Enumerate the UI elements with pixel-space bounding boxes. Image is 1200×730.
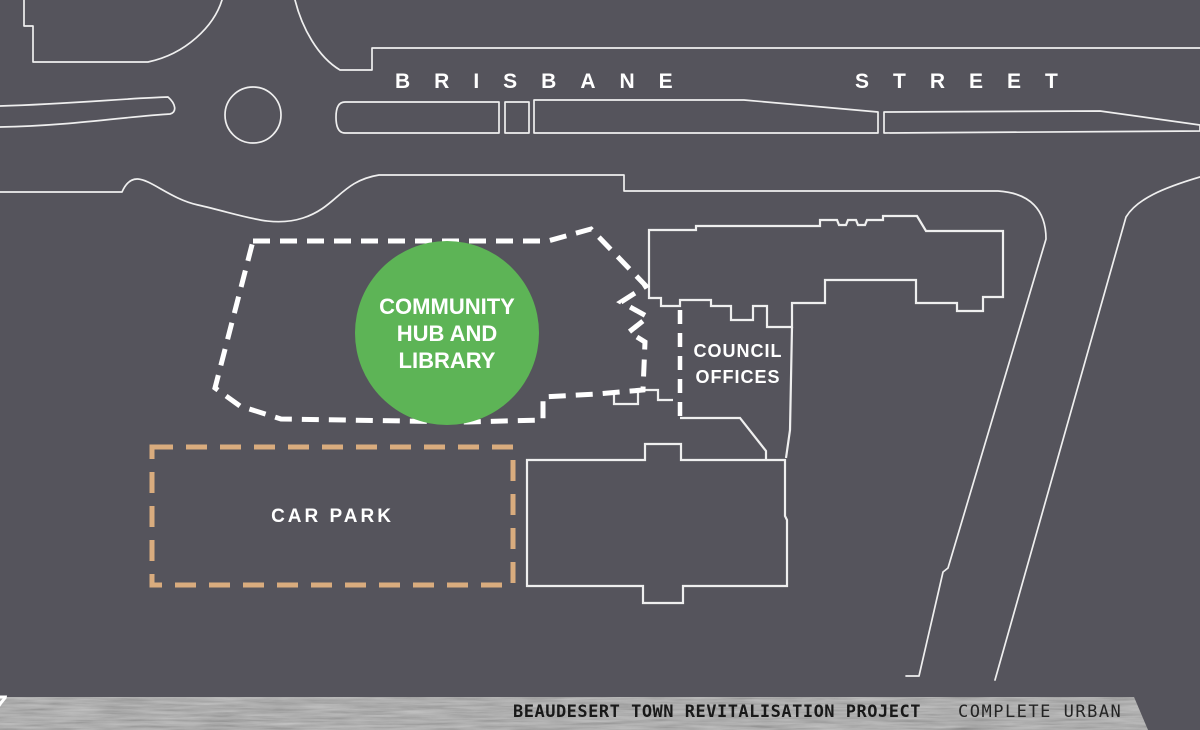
- hub-label-line2: HUB AND: [347, 320, 547, 347]
- street-label-brisbane: BRISBANE: [395, 70, 697, 94]
- council-room-bottom-outline: [680, 418, 766, 460]
- brisbane-median-3: [534, 100, 878, 133]
- footer-title-bar: BEAUDESERT TOWN REVITALISATION PROJECT C…: [0, 697, 1160, 730]
- road-top-left-corner: [24, 0, 222, 62]
- council-upper-block-outline: [649, 216, 1003, 327]
- council-offices-label: COUNCIL OFFICES: [678, 338, 798, 390]
- project-title: BEAUDESERT TOWN REVITALISATION PROJECT: [513, 702, 921, 722]
- carpark-label: CAR PARK: [152, 506, 513, 528]
- community-hub-label: COMMUNITY HUB AND LIBRARY: [347, 293, 547, 374]
- brisbane-median-1: [336, 102, 499, 133]
- hub-label-line3: LIBRARY: [347, 347, 547, 374]
- council-buildings: [527, 216, 1003, 603]
- page-number: 7: [0, 690, 6, 721]
- roundabout: [225, 87, 281, 143]
- council-lower-block-outline: [527, 444, 787, 603]
- street-label-street: STREET: [855, 70, 1082, 94]
- hub-label-line1: COMMUNITY: [347, 293, 547, 320]
- road-southeast-kerb: [995, 177, 1200, 680]
- council-label-line1: COUNCIL: [678, 338, 798, 364]
- brisbane-median-2: [505, 102, 529, 133]
- road-south-kerb: [0, 175, 1046, 676]
- council-label-line2: OFFICES: [678, 364, 798, 390]
- road-west-median-island: [0, 97, 175, 127]
- road-network: [0, 0, 1200, 680]
- road-north-kerb: [295, 0, 1200, 70]
- brisbane-median-4: [884, 111, 1200, 133]
- site-plan-drawing: [0, 0, 1200, 730]
- firm-name: COMPLETE URBAN: [958, 702, 1122, 722]
